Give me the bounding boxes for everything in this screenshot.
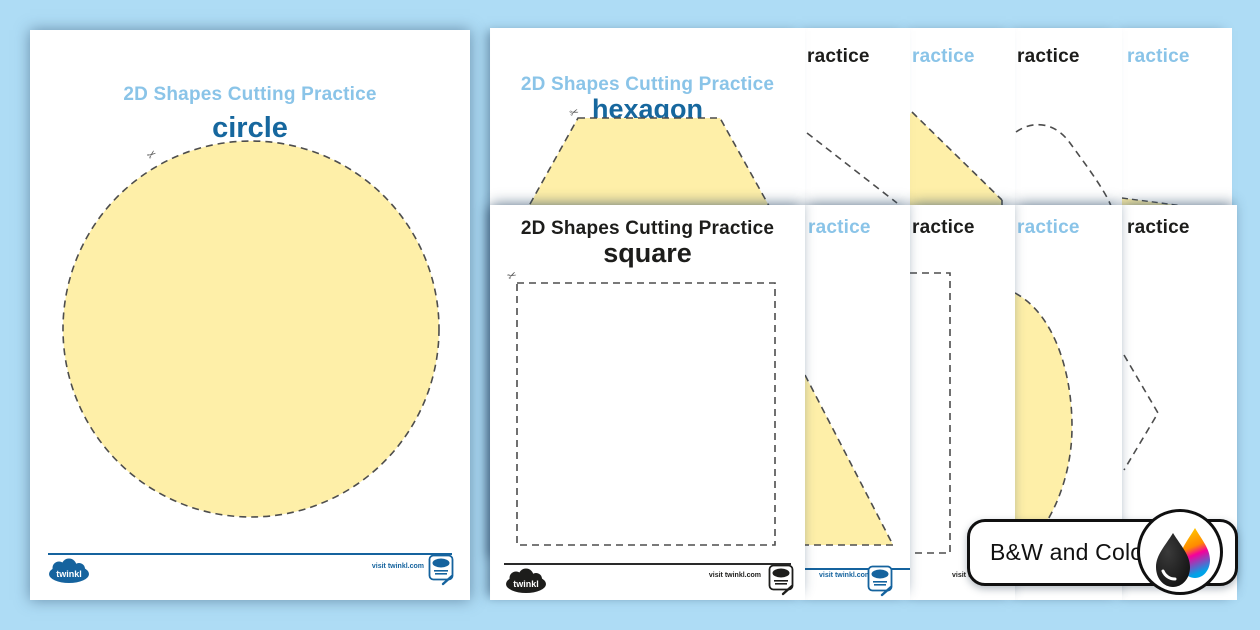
visit-link-text: visit twinkl.com [709,572,761,579]
worksheet-page-square-bw: 2D Shapes Cutting Practice square ✂ twin… [490,205,805,600]
footer-divider [805,568,910,570]
svg-text:twinkl: twinkl [56,569,82,579]
twinkl-stamp-badge [768,564,794,598]
resource-preview: 2D Shapes Cutting Practice circle ✂ twin… [0,0,1260,630]
worksheet-page-partial-color: ractice visit twinkl.com [805,205,910,600]
triangle-filled-shape [805,205,910,600]
worksheet-page-circle-color: 2D Shapes Cutting Practice circle ✂ twin… [30,30,470,600]
twinkl-logo: twinkl [48,558,90,584]
visit-link-text: visit twinkl.com [819,572,871,579]
footer-divider [48,553,452,555]
ink-drops-icon [1140,512,1220,592]
twinkl-logo: twinkl [505,568,547,594]
visit-link-text: visit twinkl.com [372,563,424,570]
ink-drops-emblem [1137,509,1223,595]
twinkl-stamp-badge [867,565,893,599]
footer-divider [504,563,791,565]
badge-label: B&W and Color [970,539,1151,566]
twinkl-stamp-badge [428,554,454,588]
svg-text:twinkl: twinkl [513,579,539,589]
circle-shape [30,30,470,600]
square-shape [490,205,805,600]
